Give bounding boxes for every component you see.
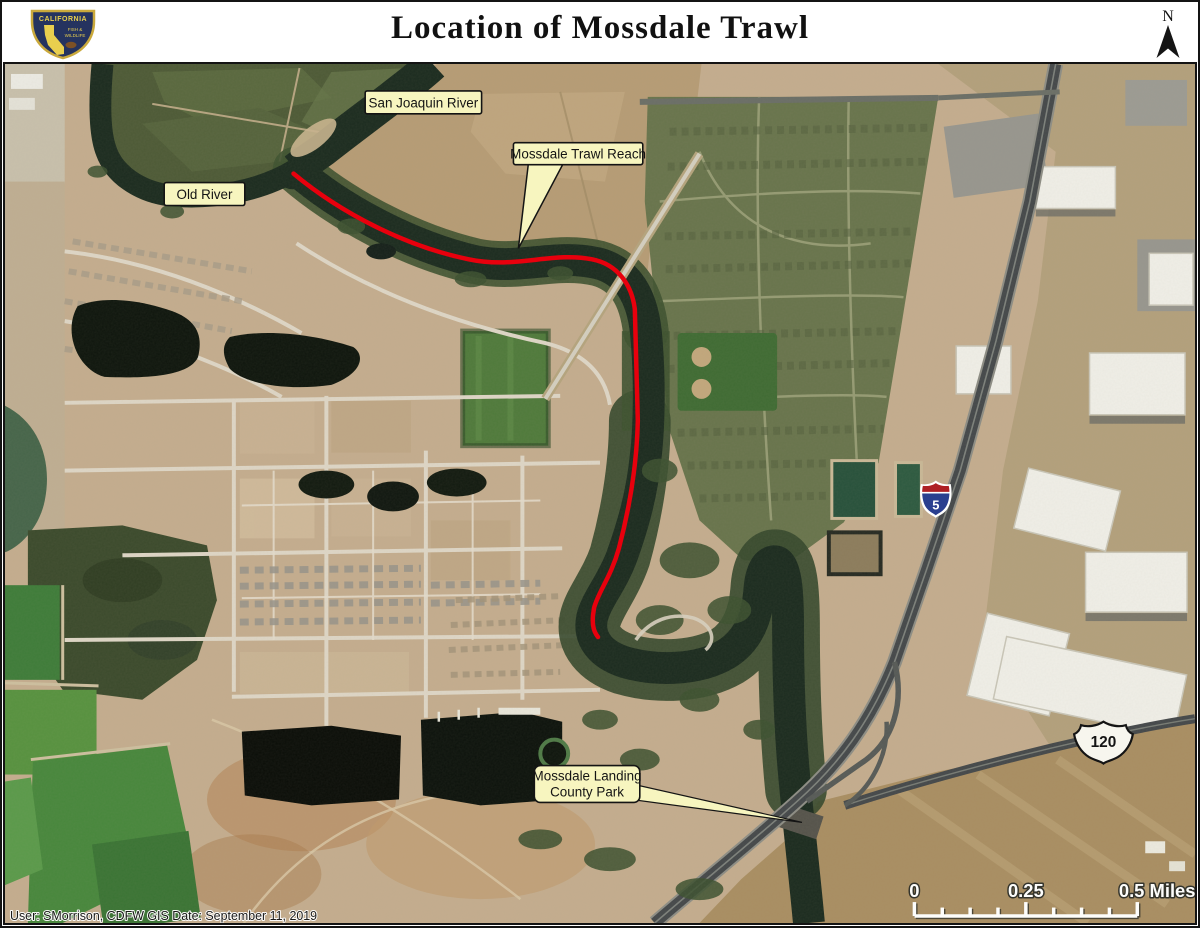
page-title: Location of Mossdale Trawl bbox=[2, 10, 1198, 47]
map-frame: San Joaquin River Old River Mossdale Tra… bbox=[3, 62, 1197, 925]
map-document-page: CALIFORNIA FISH & WILDLIFE Location of M… bbox=[0, 0, 1200, 928]
label-mossdale-landing-county-park: Mossdale Landing County Park bbox=[533, 766, 642, 803]
old-river-label: Old River bbox=[177, 187, 233, 202]
scale-middle-label: 0.25 bbox=[1008, 880, 1044, 901]
north-arrow: N bbox=[1146, 4, 1190, 61]
map-credit-text: User: SMorrison, CDFW GIS Date: Septembe… bbox=[10, 909, 317, 923]
label-san-joaquin-river: San Joaquin River bbox=[365, 91, 481, 114]
north-arrow-icon bbox=[1157, 25, 1180, 58]
scale-start-label: 0 bbox=[909, 880, 919, 901]
map-canvas: San Joaquin River Old River Mossdale Tra… bbox=[5, 64, 1195, 923]
north-label: N bbox=[1162, 8, 1174, 25]
county-park-label-line2: County Park bbox=[550, 784, 624, 799]
county-park-label-line1: Mossdale Landing bbox=[533, 768, 642, 783]
label-old-river: Old River bbox=[164, 183, 245, 206]
san-joaquin-river-label: San Joaquin River bbox=[369, 95, 479, 110]
scale-end-label: 0.5 Miles bbox=[1119, 880, 1195, 901]
mossdale-trawl-reach-label: Mossdale Trawl Reach bbox=[510, 147, 646, 162]
label-mossdale-trawl-reach: Mossdale Trawl Reach bbox=[510, 143, 646, 165]
interstate-5-number: 5 bbox=[932, 497, 939, 512]
route-120-number: 120 bbox=[1091, 734, 1117, 751]
title-bar: CALIFORNIA FISH & WILDLIFE Location of M… bbox=[2, 2, 1198, 62]
